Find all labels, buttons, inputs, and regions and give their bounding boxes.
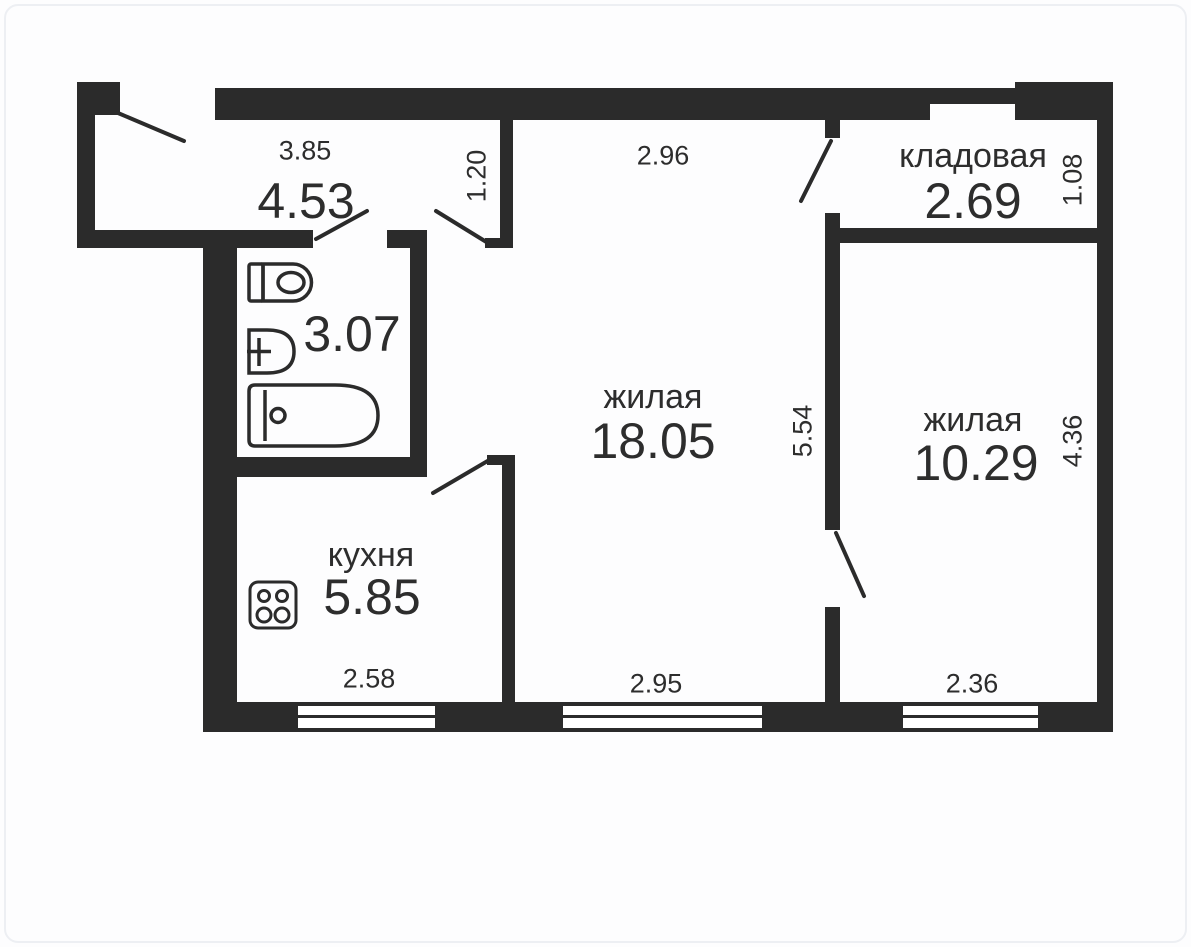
living-second-name: жилая (924, 403, 1023, 437)
living-second-width-bottom-dim: 2.36 (946, 671, 999, 698)
bathtub-icon (247, 383, 380, 448)
living-main-name: жилая (604, 380, 703, 414)
hallway-depth-dim: 1.20 (464, 150, 491, 203)
bathroom-area: 3.07 (303, 309, 400, 359)
storage-name: кладовая (899, 139, 1047, 173)
hallway-area: 4.53 (257, 176, 354, 226)
kitchen-name: кухня (328, 538, 414, 572)
entrance-door-swing (118, 113, 184, 141)
kitchen-door-swing (433, 459, 491, 493)
living-main-area: 18.05 (590, 416, 715, 466)
sink-icon (247, 328, 297, 375)
living-second-window (903, 703, 1038, 731)
living-main-window (563, 703, 762, 731)
living-second-door-swing (836, 533, 864, 596)
hallway-width-dim: 3.85 (279, 138, 332, 165)
living-main-depth-dim: 5.54 (790, 405, 817, 458)
living-second-depth-dim: 4.36 (1060, 415, 1087, 468)
storage-depth-dim: 1.08 (1060, 154, 1087, 207)
kitchen-window (298, 703, 435, 731)
living-second-area: 10.29 (913, 438, 1038, 488)
storage-area: 2.69 (924, 176, 1021, 226)
floor-plan: 3.85 4.53 1.20 3.07 2.96 жилая 18.05 5.5… (0, 0, 1191, 947)
stove-icon (248, 580, 298, 630)
toilet-icon (247, 262, 317, 303)
kitchen-width-dim: 2.58 (343, 666, 396, 693)
living-main-width-top-dim: 2.96 (637, 143, 690, 170)
living-main-width-bottom-dim: 2.95 (630, 671, 683, 698)
kitchen-area: 5.85 (323, 572, 420, 622)
storage-door-swing (801, 141, 831, 201)
hall-passage-door-swing (436, 211, 488, 243)
